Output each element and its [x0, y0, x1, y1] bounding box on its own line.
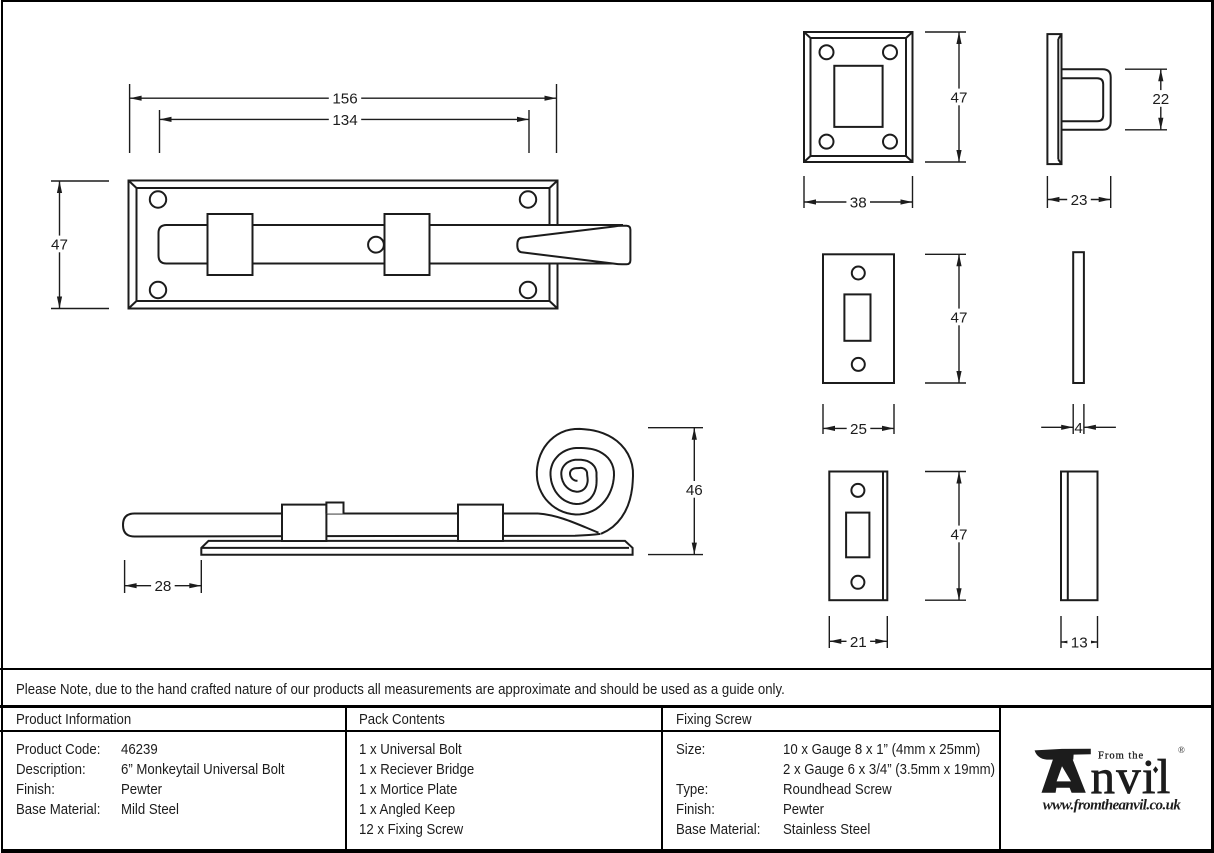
svg-text:®: ®: [1178, 745, 1185, 755]
svg-text:4: 4: [1074, 420, 1082, 437]
svg-text:13: 13: [1071, 635, 1088, 652]
svg-text:46: 46: [686, 482, 703, 499]
svg-text:47: 47: [51, 237, 68, 254]
svg-text:47: 47: [951, 90, 968, 107]
svg-text:23: 23: [1071, 192, 1088, 209]
svg-text:nvil: nvil: [1091, 749, 1172, 804]
svg-text:134: 134: [332, 112, 357, 129]
svg-text:38: 38: [850, 195, 867, 212]
svg-text:47: 47: [951, 310, 968, 327]
svg-text:www.fromtheanvil.co.uk: www.fromtheanvil.co.uk: [1043, 798, 1182, 814]
svg-text:156: 156: [332, 91, 357, 108]
svg-text:25: 25: [850, 421, 867, 438]
svg-text:47: 47: [951, 527, 968, 544]
svg-text:22: 22: [1152, 91, 1169, 108]
svg-text:28: 28: [154, 578, 171, 595]
svg-text:21: 21: [850, 634, 867, 651]
